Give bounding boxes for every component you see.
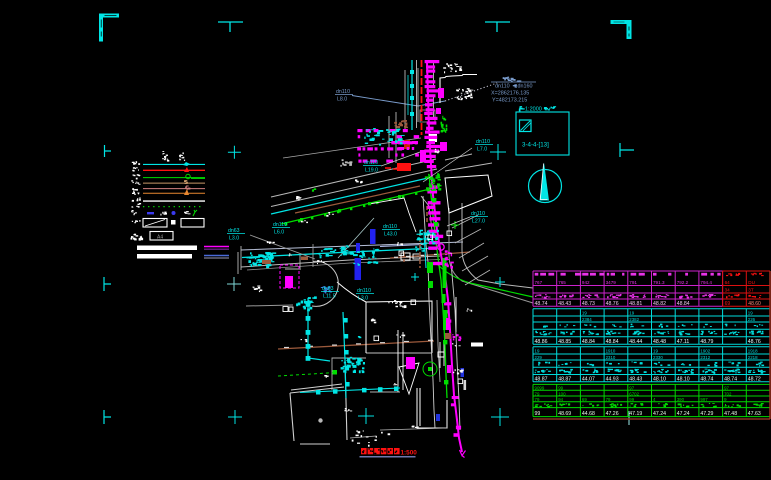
svg-text:1902: 1902 — [700, 349, 710, 354]
svg-text:19: 19 — [629, 311, 634, 316]
svg-text:Y=482173.215: Y=482173.215 — [492, 98, 527, 104]
svg-text:48.74: 48.74 — [700, 377, 713, 383]
svg-text:767: 767 — [535, 280, 543, 285]
svg-text:47.24: 47.24 — [677, 411, 690, 417]
svg-text:47.63: 47.63 — [748, 411, 761, 417]
svg-text:48.82: 48.82 — [653, 301, 666, 307]
svg-text:48.43: 48.43 — [629, 377, 642, 383]
svg-text:47.29: 47.29 — [700, 411, 713, 417]
svg-text:48.74: 48.74 — [724, 377, 737, 383]
svg-text:94: 94 — [558, 397, 563, 402]
svg-text:dn110: dn110 — [383, 224, 397, 230]
svg-text:48.76: 48.76 — [748, 339, 761, 345]
svg-text:L7.0: L7.0 — [477, 147, 487, 153]
svg-text:1:500: 1:500 — [401, 450, 418, 457]
svg-text:48.85: 48.85 — [558, 339, 571, 345]
svg-text:48.79: 48.79 — [700, 339, 713, 345]
svg-text:L43.0: L43.0 — [384, 232, 397, 238]
svg-text:47.48: 47.48 — [724, 411, 737, 417]
svg-text:3479: 3479 — [606, 280, 617, 285]
svg-text:69: 69 — [582, 397, 587, 402]
svg-text:2310: 2310 — [606, 355, 616, 360]
svg-text:79: 79 — [535, 397, 540, 402]
svg-text:2312: 2312 — [700, 355, 710, 360]
svg-text:1918: 1918 — [748, 349, 758, 354]
svg-text:48.43: 48.43 — [558, 301, 571, 307]
svg-text:997: 997 — [700, 397, 708, 402]
svg-text:794.4: 794.4 — [700, 280, 712, 285]
svg-text:X=2862176.135: X=2862176.135 — [491, 91, 529, 97]
svg-text:dn110: dn110 — [336, 89, 350, 95]
svg-text:99: 99 — [629, 397, 634, 402]
svg-text:48.48: 48.48 — [653, 339, 666, 345]
svg-text:dn110: dn110 — [476, 139, 490, 145]
svg-text:A4: A4 — [157, 235, 163, 241]
svg-text:48.60: 48.60 — [748, 301, 761, 307]
svg-text:226: 226 — [748, 317, 756, 322]
svg-text:48.10: 48.10 — [653, 377, 666, 383]
svg-text:19: 19 — [582, 311, 587, 316]
svg-text:69: 69 — [725, 301, 731, 307]
svg-text:dn63: dn63 — [322, 286, 334, 292]
svg-text:3-4-4-[13]: 3-4-4-[13] — [522, 142, 549, 149]
svg-text:48.87: 48.87 — [558, 377, 571, 383]
svg-text:48.44: 48.44 — [629, 339, 642, 345]
svg-text:99: 99 — [558, 386, 563, 391]
svg-text:6702: 6702 — [629, 391, 639, 396]
svg-text:2218: 2218 — [748, 355, 758, 360]
svg-text:2384: 2384 — [582, 317, 592, 322]
svg-text:390: 390 — [677, 397, 685, 402]
svg-text:DU: DU — [748, 280, 755, 285]
svg-text:791.3: 791.3 — [653, 280, 665, 285]
svg-text:97: 97 — [724, 386, 729, 391]
svg-text:34: 34 — [725, 288, 731, 293]
svg-text:19: 19 — [653, 349, 658, 354]
svg-text:229: 229 — [535, 355, 543, 360]
svg-text:48.10: 48.10 — [677, 377, 690, 383]
svg-text:9099: 9099 — [535, 386, 545, 391]
svg-text:2382: 2382 — [629, 317, 639, 322]
svg-text:3T: 3T — [748, 288, 754, 293]
svg-text:48.74: 48.74 — [535, 301, 548, 307]
svg-text:48.87: 48.87 — [535, 377, 548, 383]
svg-text:dn110: dn110 — [364, 160, 378, 166]
svg-text:44.93: 44.93 — [606, 377, 619, 383]
svg-text:dn110: dn110 — [273, 222, 287, 228]
svg-text:765: 765 — [558, 280, 566, 285]
svg-text:dn110: dn110 — [357, 288, 371, 294]
svg-text:1910: 1910 — [606, 349, 616, 354]
svg-text:48.86: 48.86 — [535, 339, 548, 345]
svg-text:792.2: 792.2 — [677, 280, 689, 285]
svg-text:47.24: 47.24 — [653, 411, 666, 417]
svg-text:48.76: 48.76 — [606, 301, 619, 307]
svg-text:791: 791 — [629, 280, 637, 285]
svg-text:L3.0: L3.0 — [229, 236, 239, 242]
svg-text:44.07: 44.07 — [582, 377, 595, 383]
svg-text:48.84: 48.84 — [606, 339, 619, 345]
svg-text:dn160: dn160 — [518, 84, 533, 90]
svg-text:79: 79 — [606, 397, 611, 402]
svg-text:97: 97 — [629, 386, 634, 391]
svg-text:942: 942 — [582, 280, 590, 285]
svg-text:48.72: 48.72 — [748, 377, 761, 383]
svg-text:L8.0: L8.0 — [337, 97, 347, 103]
svg-text:48.81: 48.81 — [629, 301, 642, 307]
svg-text:2330: 2330 — [653, 355, 663, 360]
svg-text:L19.0: L19.0 — [365, 168, 378, 174]
svg-text:47.11: 47.11 — [677, 339, 690, 345]
svg-text:48.84: 48.84 — [677, 301, 690, 307]
svg-text:99: 99 — [535, 411, 541, 417]
svg-text:48.69: 48.69 — [558, 411, 571, 417]
svg-text:19: 19 — [748, 311, 753, 316]
svg-text:47.26: 47.26 — [606, 411, 619, 417]
svg-text:44.68: 44.68 — [582, 411, 595, 417]
svg-text:19: 19 — [535, 349, 540, 354]
svg-text:79: 79 — [535, 391, 540, 396]
svg-text:dn63: dn63 — [228, 228, 240, 234]
svg-text:dn110: dn110 — [471, 211, 485, 217]
svg-text:dn110: dn110 — [495, 84, 510, 90]
svg-text:48.73: 48.73 — [582, 301, 595, 307]
svg-text:702: 702 — [724, 391, 732, 396]
svg-text:100: 100 — [558, 391, 566, 396]
svg-text:47.19: 47.19 — [629, 411, 642, 417]
svg-text:L11.5: L11.5 — [323, 294, 336, 300]
svg-text:L3.0: L3.0 — [358, 296, 368, 302]
svg-text:L27.0: L27.0 — [472, 219, 485, 225]
svg-text:48.84: 48.84 — [582, 339, 595, 345]
svg-text:64: 64 — [725, 280, 731, 285]
svg-text:L6.0: L6.0 — [274, 230, 284, 236]
